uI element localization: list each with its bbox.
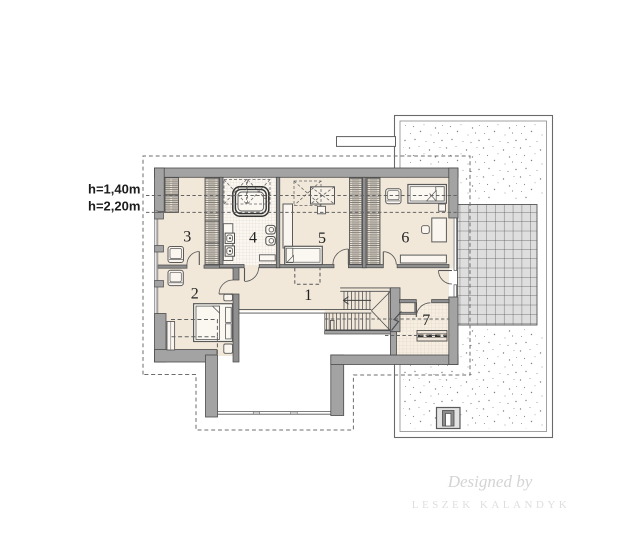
svg-text:3: 3 — [183, 229, 191, 246]
svg-text:Designed by: Designed by — [447, 472, 533, 491]
svg-text:h=2,20m: h=2,20m — [88, 199, 140, 214]
svg-text:2: 2 — [191, 286, 199, 303]
svg-text:5: 5 — [318, 230, 326, 247]
svg-text:LESZEK KALANDYK: LESZEK KALANDYK — [412, 499, 571, 511]
svg-text:6: 6 — [401, 229, 409, 246]
svg-text:4: 4 — [249, 230, 257, 247]
svg-text:1: 1 — [304, 287, 312, 304]
svg-text:h=1,40m: h=1,40m — [88, 182, 140, 197]
svg-text:7: 7 — [422, 312, 430, 329]
